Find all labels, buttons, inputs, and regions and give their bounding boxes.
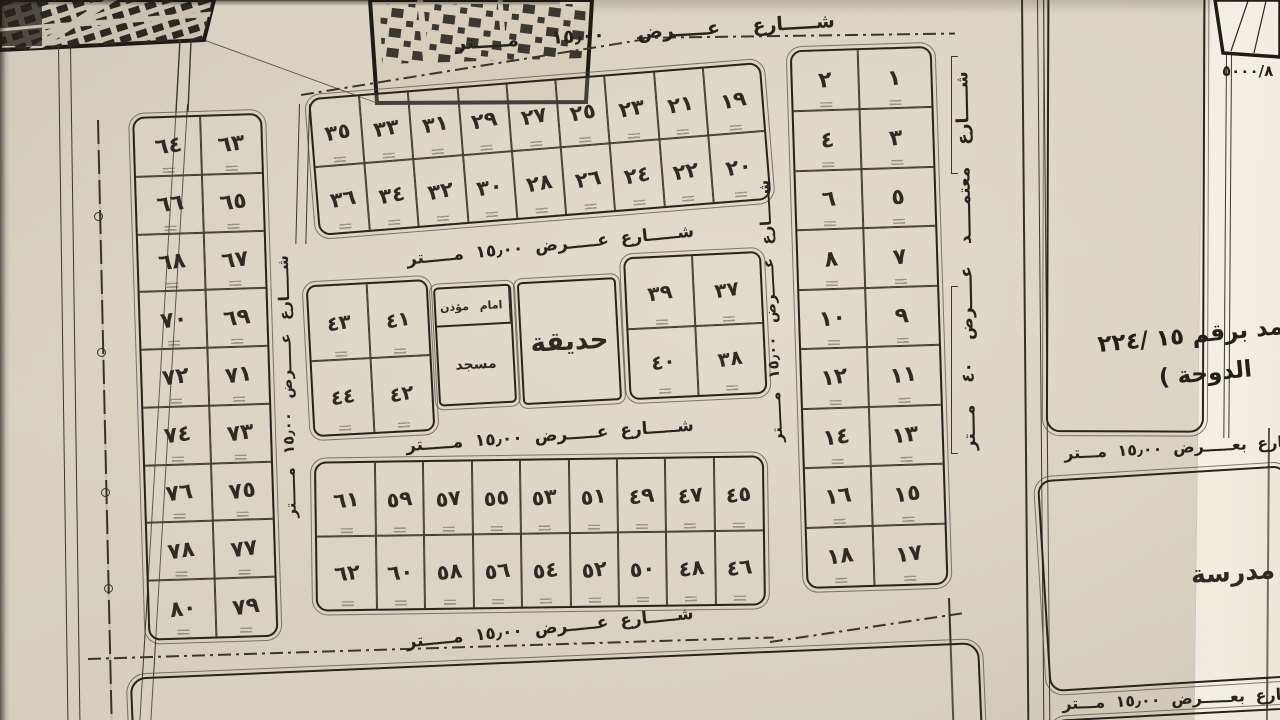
mosque-label: مسجد	[455, 355, 497, 373]
plot-cell: ٤٦	[715, 530, 764, 604]
plot-cell: ٤٧	[665, 458, 714, 532]
imam-room: امام	[472, 286, 511, 324]
plot-cell: ٦	[795, 169, 863, 230]
plot-number: ٥٤	[532, 556, 560, 583]
plot-cell: ٣٤	[365, 159, 419, 230]
plot-number: ٥٦	[483, 557, 511, 584]
plot-cell: ١٦	[805, 466, 873, 527]
plot-number: ٩	[894, 303, 911, 330]
block-center-west-41-44: ٤٣٤١٤٤٤٢	[306, 279, 436, 437]
plot-cell: ٧٥	[211, 461, 273, 521]
plot-cell: ٦٥	[202, 173, 264, 233]
plot-cell: ٦٩	[206, 288, 268, 348]
plot-number: ٣٨	[716, 345, 744, 372]
plot-number: ١٦	[824, 483, 854, 511]
plot-cell: ٧٧	[213, 519, 275, 579]
plot-cell: ٧٨	[147, 521, 215, 581]
plot-number: ٦٩	[221, 304, 251, 332]
plot-number: ٥٧	[434, 485, 462, 512]
plot-number: ٢٣	[617, 94, 647, 122]
block-north-19-36: ٣٥٣٣٣١٢٩٢٧٢٥٢٣٢١١٩٣٦٣٤٣٢٣٠٢٨٢٦٢٤٢٢٢٠	[308, 62, 772, 236]
plot-cell: ٦٢	[317, 536, 377, 610]
block-center-east-37-40: ٣٩٣٧٤٠٣٨	[623, 251, 768, 400]
plot-number: ٤٠	[650, 348, 678, 375]
plot-cell: ٥٧	[423, 461, 472, 535]
plot-cell: ١٥	[870, 464, 944, 526]
plot-number: ٦٢	[333, 559, 361, 586]
plot-cell: ١٠	[799, 288, 867, 349]
garden-label: حديقة	[530, 324, 609, 358]
plot-number: ٤٥	[724, 481, 752, 508]
plot-number: ٥٠	[628, 555, 656, 582]
plot-number: ٦٦	[155, 190, 185, 218]
plot-number: ٢٢	[671, 157, 701, 185]
plot-cell: ٦٣	[200, 115, 262, 175]
imam-label: امام	[479, 298, 502, 312]
plot-number: ١٨	[825, 542, 855, 570]
plot-cell: ٥٢	[569, 532, 618, 606]
plot-number: ٤١	[384, 306, 412, 334]
plot-cell: ٣٢	[414, 155, 468, 226]
plot-number: ٥٩	[385, 485, 413, 512]
plot-number: ٢٧	[519, 102, 549, 130]
plot-cell: ٤	[794, 110, 862, 171]
plot-number: ٣٥	[323, 117, 353, 145]
plot-number: ٧٢	[160, 363, 190, 391]
plot-cell: ١٧	[872, 523, 946, 585]
plot-cell: ٣٣	[359, 92, 413, 163]
plot-cell: ٣٥	[310, 96, 364, 167]
plot-number: ٥١	[579, 483, 607, 510]
plot-number: ٦	[821, 186, 838, 213]
plot-number: ٢٠	[724, 152, 754, 180]
plot-number: ٣	[888, 125, 905, 152]
plot-cell: ٢٩	[457, 84, 511, 155]
plot-number: ٦٠	[386, 558, 414, 585]
plot-number: ٣٢	[426, 176, 456, 204]
plot-cell: ٨	[797, 228, 865, 289]
plot-number: ٦٥	[218, 188, 248, 216]
plot-number: ٧٦	[164, 479, 194, 507]
plot-cell: ٣١	[408, 88, 462, 159]
plot-number: ٣٩	[646, 279, 674, 306]
plot-number: ٤٩	[627, 482, 655, 509]
plot-number: ٦٨	[157, 248, 187, 276]
plot-number: ٧٧	[229, 535, 259, 563]
plot-cell: ٧٠	[140, 290, 208, 350]
plot-cell: ١٤	[803, 407, 871, 468]
plot-cell: ١٢	[801, 347, 869, 408]
plot-number: ١٩	[719, 86, 749, 114]
plot-number: ٥٣	[531, 483, 559, 510]
plot-number: ١٤	[822, 423, 852, 451]
plot-cell: ٥٩	[375, 462, 424, 536]
muezzin-label: مؤذن	[440, 299, 469, 313]
plot-cell: ٩	[865, 286, 939, 348]
plot-cell: ٧١	[207, 346, 269, 406]
plot-cell: ٧٤	[143, 406, 211, 466]
street-label-right-top: شـــارع بعـــــرض ١٥٫٠٠ مـــتر	[1047, 430, 1280, 464]
plot-number: ٣٣	[372, 114, 402, 142]
plot-number: ٧٣	[225, 419, 255, 447]
mosque-block: مؤذن امام مسجد	[433, 284, 517, 407]
scanned-subdivision-plan: ٥٠٠٠/٨ ٦٤٦٣٦٦٦٥٦٨٦٧٧٠٦٩٧٢٧١٧٤٧٣٧٦٧٥٧٨٧٧٨…	[0, 0, 1280, 720]
plot-cell: ٦٦	[136, 175, 204, 235]
plot-cell: ٧٦	[145, 463, 213, 523]
garden-block: حديقة	[517, 277, 622, 405]
plot-number: ٣٧	[713, 276, 741, 303]
plot-cell: ١٨	[807, 525, 875, 586]
plot-cell: ٢٢	[659, 135, 713, 206]
block-east-1-18: ٢١٤٣٦٥٨٧١٠٩١٢١١١٤١٣١٦١٥١٨١٧	[790, 46, 949, 589]
plot-cell: ٣	[859, 107, 933, 169]
plot-cell: ٢٣	[605, 73, 659, 144]
plot-cell: ٣٠	[463, 151, 517, 222]
school-block: مدرسة	[1037, 465, 1280, 692]
street-label-40m-vertical: شـــــارع معتمـــــد عـــــرض ٤٠ مـــتر	[951, 26, 981, 496]
plot-number: ٤	[819, 127, 836, 154]
plot-cell: ٢١	[654, 69, 708, 140]
plot-number: ٣٤	[377, 180, 407, 208]
plot-cell: ١	[857, 48, 931, 110]
plot-cell: ١١	[867, 345, 941, 407]
plot-cell: ١٩	[703, 64, 764, 135]
plot-cell: ٤٢	[371, 355, 434, 432]
plot-number: ٥٥	[482, 484, 510, 511]
plot-cell: ٣٦	[316, 163, 370, 234]
plot-cell: ٨٠	[149, 579, 217, 639]
plot-cell: ٢٧	[506, 80, 560, 151]
plot-number: ٤٤	[329, 383, 357, 411]
plan-drawing: ٦٤٦٣٦٦٦٥٦٨٦٧٧٠٦٩٧٢٧١٧٤٧٣٧٦٧٥٧٨٧٧٨٠٧٩ ٣٥٣…	[0, 0, 1280, 720]
plot-number: ٨٠	[168, 595, 198, 623]
plot-cell: ٢٨	[512, 147, 566, 218]
plot-cell: ٣٨	[695, 322, 765, 395]
plot-number: ٦٤	[153, 132, 183, 160]
plot-cell: ٤٠	[628, 326, 698, 399]
plot-number: ٤٢	[388, 380, 416, 408]
plot-cell: ٥	[861, 167, 935, 229]
plot-number: ٤٦	[725, 554, 753, 581]
block-bottom-partial	[130, 642, 986, 720]
plot-number: ٢٥	[568, 98, 598, 126]
plot-cell: ٦٧	[204, 230, 266, 290]
plot-number: ١٧	[894, 540, 924, 568]
street-label-west-vertical: شـــــارع عـــــرض ١٥٫٠٠ مـــــتر	[273, 216, 302, 556]
plot-number: ١	[886, 65, 903, 92]
plot-number: ٣١	[421, 110, 451, 138]
plot-cell: ٥٦	[473, 534, 522, 608]
plot-number: ٢٤	[622, 161, 652, 189]
plot-number: ١٢	[820, 364, 850, 392]
plot-number: ٨	[823, 246, 840, 273]
muezzin-room: مؤذن	[435, 288, 474, 326]
plot-number: ٧١	[223, 362, 253, 390]
plot-number: ٢٩	[470, 106, 500, 134]
plot-cell: ٧	[863, 226, 937, 288]
photo-edge-shadow-top	[0, 0, 560, 6]
plot-number: ٧	[892, 244, 909, 271]
plot-number: ٦١	[332, 486, 360, 513]
plot-cell: ٥٤	[521, 533, 570, 607]
plot-cell: ٢٤	[610, 139, 664, 210]
plot-number: ٥٢	[580, 556, 608, 583]
plot-cell: ٥٣	[520, 460, 569, 534]
plot-cell: ٧٩	[215, 577, 277, 637]
mosque-area: مسجد	[437, 324, 515, 405]
plot-number: ٢	[817, 68, 834, 95]
plot-number: ١٠	[818, 304, 848, 332]
plot-cell: ٣٩	[625, 256, 695, 329]
plot-cell: ٤٥	[714, 457, 763, 531]
plot-number: ٦٣	[216, 131, 246, 159]
plot-number: ١٥	[893, 480, 923, 508]
school-label: مدرسة	[1190, 556, 1276, 590]
plot-cell: ٤٤	[312, 358, 375, 435]
plot-cell: ٤٨	[666, 531, 715, 605]
plot-number: ٢١	[666, 90, 696, 118]
plot-cell: ٢٦	[561, 143, 615, 214]
plot-cell: ٢٥	[556, 77, 610, 148]
plot-number: ٤٨	[677, 554, 705, 581]
plot-number: ٤٧	[676, 481, 704, 508]
plot-number: ٥	[890, 184, 907, 211]
plot-cell: ٥٠	[618, 532, 667, 606]
plot-number: ٧٨	[166, 537, 196, 565]
plot-cell: ٥٨	[424, 534, 473, 608]
plot-number: ٧٩	[231, 593, 261, 621]
plot-cell: ٢	[792, 50, 860, 111]
plot-number: ١٣	[891, 421, 921, 449]
plot-number: ٥٨	[435, 558, 463, 585]
plot-number: ١١	[889, 362, 919, 390]
plot-cell: ٥٥	[472, 461, 521, 535]
plot-cell: ١٣	[869, 404, 943, 466]
plot-cell: ٦٨	[138, 232, 206, 292]
plot-number: ٧٠	[158, 306, 188, 334]
plot-cell: ٥١	[568, 459, 617, 533]
plot-cell: ٣٧	[692, 253, 762, 326]
plot-number: ٤٣	[325, 309, 353, 337]
block-south-45-62: ٦١٥٩٥٧٥٥٥٣٥١٤٩٤٧٤٥٦٢٦٠٥٨٥٦٥٤٥٢٥٠٤٨٤٦	[314, 455, 766, 611]
block-west-63-80: ٦٤٦٣٦٦٦٥٦٨٦٧٧٠٦٩٧٢٧١٧٤٧٣٧٦٧٥٧٨٧٧٨٠٧٩	[132, 113, 278, 641]
plot-cell: ٤٩	[617, 459, 666, 533]
plot-number: ٣٠	[475, 172, 505, 200]
plot-cell: ٤١	[367, 281, 430, 358]
plot-number: ٢٦	[573, 165, 603, 193]
plot-cell: ٦٠	[376, 535, 425, 609]
plot-cell: ٧٣	[209, 404, 271, 464]
plot-cell: ٦١	[316, 463, 376, 537]
plot-cell: ٦٤	[134, 117, 202, 177]
plot-cell: ٤٣	[308, 284, 371, 361]
plot-number: ٧٥	[227, 477, 257, 505]
plot-number: ٣٦	[328, 184, 358, 212]
plot-number: ٧٤	[162, 421, 192, 449]
plot-cell: ٧٢	[141, 348, 209, 408]
plot-number: ٦٧	[220, 246, 250, 274]
plot-number: ٢٨	[524, 168, 554, 196]
